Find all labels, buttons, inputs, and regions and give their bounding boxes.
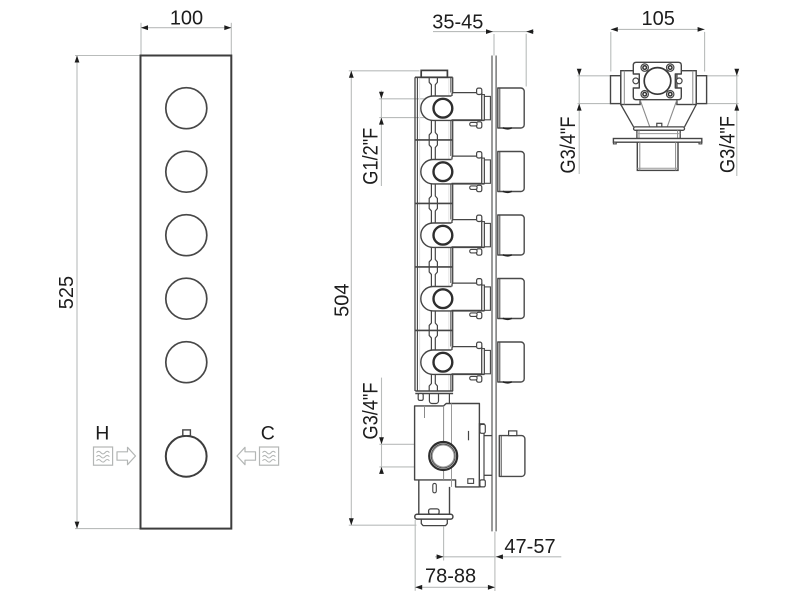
svg-text:47-57: 47-57 [504, 536, 555, 558]
svg-text:G3/4"F: G3/4"F [716, 116, 739, 173]
svg-text:35-45: 35-45 [432, 11, 483, 33]
svg-text:100: 100 [170, 8, 203, 30]
svg-text:G3/4"F: G3/4"F [360, 383, 383, 440]
svg-text:C: C [261, 423, 275, 445]
svg-text:105: 105 [642, 8, 675, 30]
svg-text:G3/4"F: G3/4"F [557, 117, 580, 174]
svg-text:G1/2"F: G1/2"F [359, 128, 382, 185]
svg-text:78-88: 78-88 [425, 565, 476, 587]
svg-text:504: 504 [332, 284, 354, 317]
svg-text:H: H [95, 423, 109, 445]
svg-text:525: 525 [56, 276, 78, 309]
